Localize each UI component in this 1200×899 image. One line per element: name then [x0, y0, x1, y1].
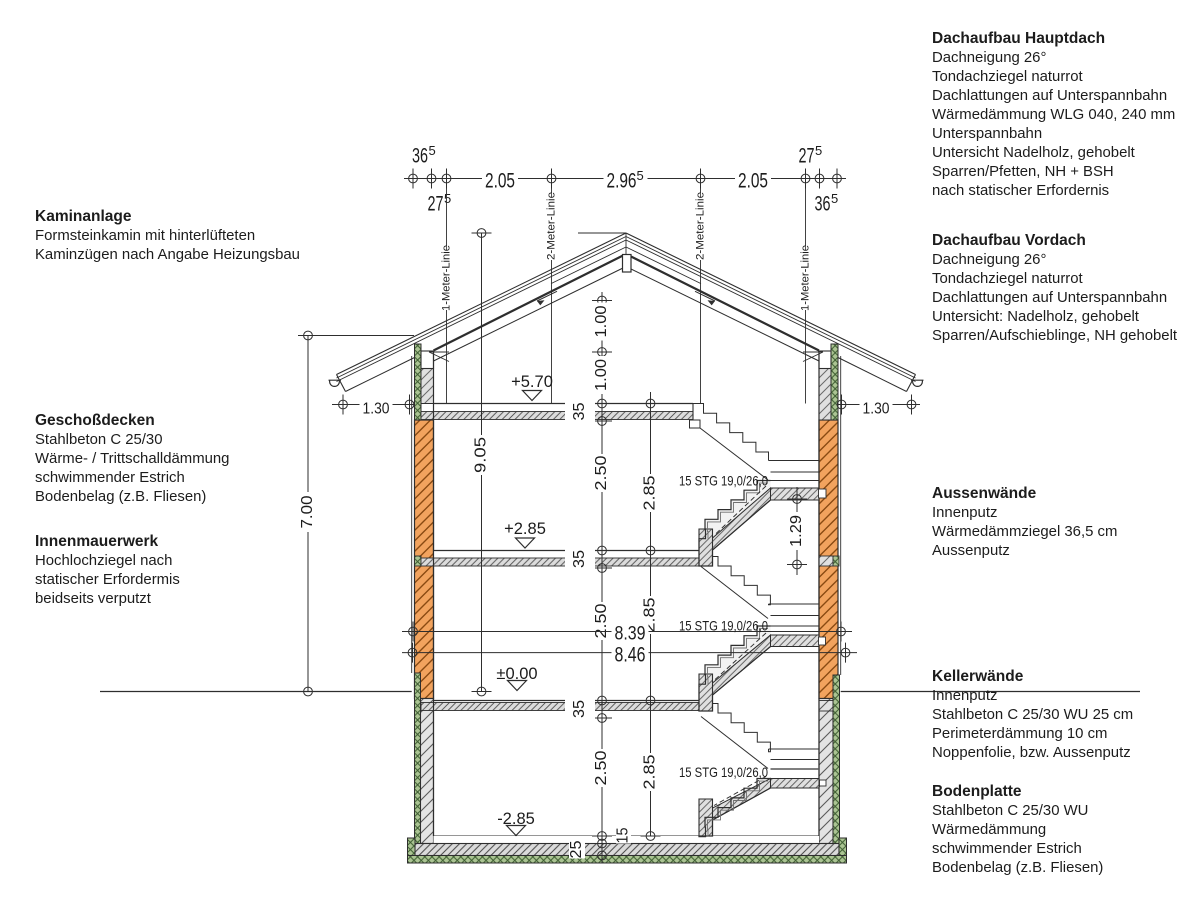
svg-text:Tondachziegel naturrot: Tondachziegel naturrot	[932, 69, 1084, 85]
svg-text:schwimmender Estrich: schwimmender Estrich	[35, 470, 185, 486]
svg-text:1.30: 1.30	[863, 401, 890, 418]
svg-text:35: 35	[571, 550, 588, 568]
svg-text:Dachaufbau Vordach: Dachaufbau Vordach	[932, 232, 1086, 249]
svg-text:2.85: 2.85	[642, 476, 659, 511]
svg-text:Kellerwände: Kellerwände	[932, 668, 1024, 685]
svg-text:36: 36	[412, 145, 428, 168]
svg-text:Formsteinkamin mit hinterlüfte: Formsteinkamin mit hinterlüfteten	[35, 228, 255, 244]
svg-text:15: 15	[615, 828, 632, 844]
svg-text:Tondachziegel naturrot: Tondachziegel naturrot	[932, 271, 1084, 287]
svg-text:Hochlochziegel nach: Hochlochziegel nach	[35, 553, 172, 569]
svg-text:2.05: 2.05	[485, 170, 515, 193]
svg-text:15 STG 19,0/26,0: 15 STG 19,0/26,0	[679, 764, 768, 780]
svg-text:Bodenbelag (z.B. Fliesen): Bodenbelag (z.B. Fliesen)	[932, 860, 1103, 876]
svg-text:2.05: 2.05	[738, 170, 768, 193]
svg-text:statischer Erfordermis: statischer Erfordermis	[35, 572, 180, 588]
svg-text:Sparren/Pfetten, NH + BSH: Sparren/Pfetten, NH + BSH	[932, 164, 1114, 180]
svg-text:Untersicht: Nadelholz, gehobel: Untersicht: Nadelholz, gehobelt	[932, 309, 1140, 325]
svg-text:2.85: 2.85	[642, 755, 659, 790]
svg-text:2-Meter-Linie: 2-Meter-Linie	[545, 192, 557, 260]
svg-text:Kaminzügen nach Angabe Heizung: Kaminzügen nach Angabe Heizungsbau	[35, 247, 300, 263]
svg-text:Noppenfolie, bzw. Aussenputz: Noppenfolie, bzw. Aussenputz	[932, 745, 1131, 761]
svg-text:5: 5	[637, 168, 644, 183]
svg-text:Stahlbeton C 25/30 WU: Stahlbeton C 25/30 WU	[932, 803, 1088, 819]
svg-text:schwimmender Estrich: schwimmender Estrich	[932, 841, 1082, 857]
svg-text:nach statischer Erfordernis: nach statischer Erfordernis	[932, 183, 1109, 199]
svg-text:Aussenputz: Aussenputz	[932, 543, 1010, 559]
svg-text:Kaminanlage: Kaminanlage	[35, 208, 132, 225]
svg-text:Stahlbeton C 25/30 WU 25 cm: Stahlbeton C 25/30 WU 25 cm	[932, 707, 1133, 723]
svg-text:35: 35	[571, 700, 588, 718]
svg-text:15 STG 19,0/26,0: 15 STG 19,0/26,0	[679, 618, 768, 634]
svg-text:Perimeterdämmung 10 cm: Perimeterdämmung 10 cm	[932, 726, 1107, 742]
svg-text:+2.85: +2.85	[504, 520, 546, 538]
svg-text:9.05: 9.05	[473, 437, 490, 473]
svg-text:5: 5	[429, 143, 436, 158]
svg-text:Stahlbeton C 25/30: Stahlbeton C 25/30	[35, 432, 163, 448]
svg-text:Innenmauerwerk: Innenmauerwerk	[35, 533, 159, 550]
svg-text:Dachneigung 26°: Dachneigung 26°	[932, 50, 1046, 66]
svg-text:Wärme- / Trittschalldämmung: Wärme- / Trittschalldämmung	[35, 451, 229, 467]
svg-text:Innenputz: Innenputz	[932, 505, 997, 521]
svg-text:Dachneigung 26°: Dachneigung 26°	[932, 252, 1046, 268]
svg-text:Unterspannbahn: Unterspannbahn	[932, 126, 1042, 142]
svg-text:2-Meter-Linie: 2-Meter-Linie	[694, 192, 706, 260]
svg-text:35: 35	[571, 403, 588, 421]
svg-text:Dachlattungen auf Unterspannba: Dachlattungen auf Unterspannbahn	[932, 290, 1167, 306]
svg-text:5: 5	[831, 191, 838, 206]
svg-text:27: 27	[799, 145, 815, 168]
svg-text:1-Meter-Linie: 1-Meter-Linie	[440, 245, 452, 311]
svg-text:2.50: 2.50	[593, 603, 610, 638]
svg-text:5: 5	[815, 143, 822, 158]
svg-text:Dachlattungen auf Unterspannba: Dachlattungen auf Unterspannbahn	[932, 88, 1167, 104]
svg-text:Bodenbelag (z.B. Fliesen): Bodenbelag (z.B. Fliesen)	[35, 489, 206, 505]
svg-text:Sparren/Aufschieblinge, NH geh: Sparren/Aufschieblinge, NH gehobelt	[932, 328, 1178, 344]
svg-text:beidseits verputzt: beidseits verputzt	[35, 591, 152, 607]
svg-text:36: 36	[815, 193, 831, 216]
svg-text:Aussenwände: Aussenwände	[932, 485, 1037, 502]
svg-text:1.30: 1.30	[363, 401, 390, 418]
svg-text:8.39: 8.39	[615, 624, 646, 645]
svg-text:25: 25	[568, 841, 585, 859]
svg-text:+5.70: +5.70	[511, 373, 553, 391]
svg-text:5: 5	[444, 191, 451, 206]
svg-text:1.00: 1.00	[593, 305, 610, 337]
svg-text:Geschoßdecken: Geschoßdecken	[35, 412, 155, 429]
svg-text:1-Meter-Linie: 1-Meter-Linie	[799, 245, 811, 311]
svg-text:Innenputz: Innenputz	[932, 688, 997, 704]
svg-text:1.00: 1.00	[593, 359, 610, 391]
svg-text:Bodenplatte: Bodenplatte	[932, 783, 1022, 800]
svg-text:1.29: 1.29	[788, 515, 805, 547]
svg-text:2.96: 2.96	[607, 170, 637, 193]
svg-text:7.00: 7.00	[299, 495, 316, 528]
svg-text:Dachaufbau Hauptdach: Dachaufbau Hauptdach	[932, 30, 1105, 47]
svg-text:8.46: 8.46	[615, 644, 646, 667]
svg-text:Untersicht Nadelholz, gehobelt: Untersicht Nadelholz, gehobelt	[932, 145, 1136, 161]
svg-text:Wärmedämmung WLG 040, 240 mm: Wärmedämmung WLG 040, 240 mm	[932, 107, 1175, 123]
svg-text:15 STG 19,0/26,0: 15 STG 19,0/26,0	[679, 473, 768, 489]
svg-text:2.50: 2.50	[593, 455, 610, 490]
svg-text:Wärmedämmziegel 36,5 cm: Wärmedämmziegel 36,5 cm	[932, 524, 1117, 540]
svg-text:2.50: 2.50	[593, 750, 610, 785]
svg-text:Wärmedämmung: Wärmedämmung	[932, 822, 1046, 838]
svg-text:27: 27	[428, 193, 444, 216]
